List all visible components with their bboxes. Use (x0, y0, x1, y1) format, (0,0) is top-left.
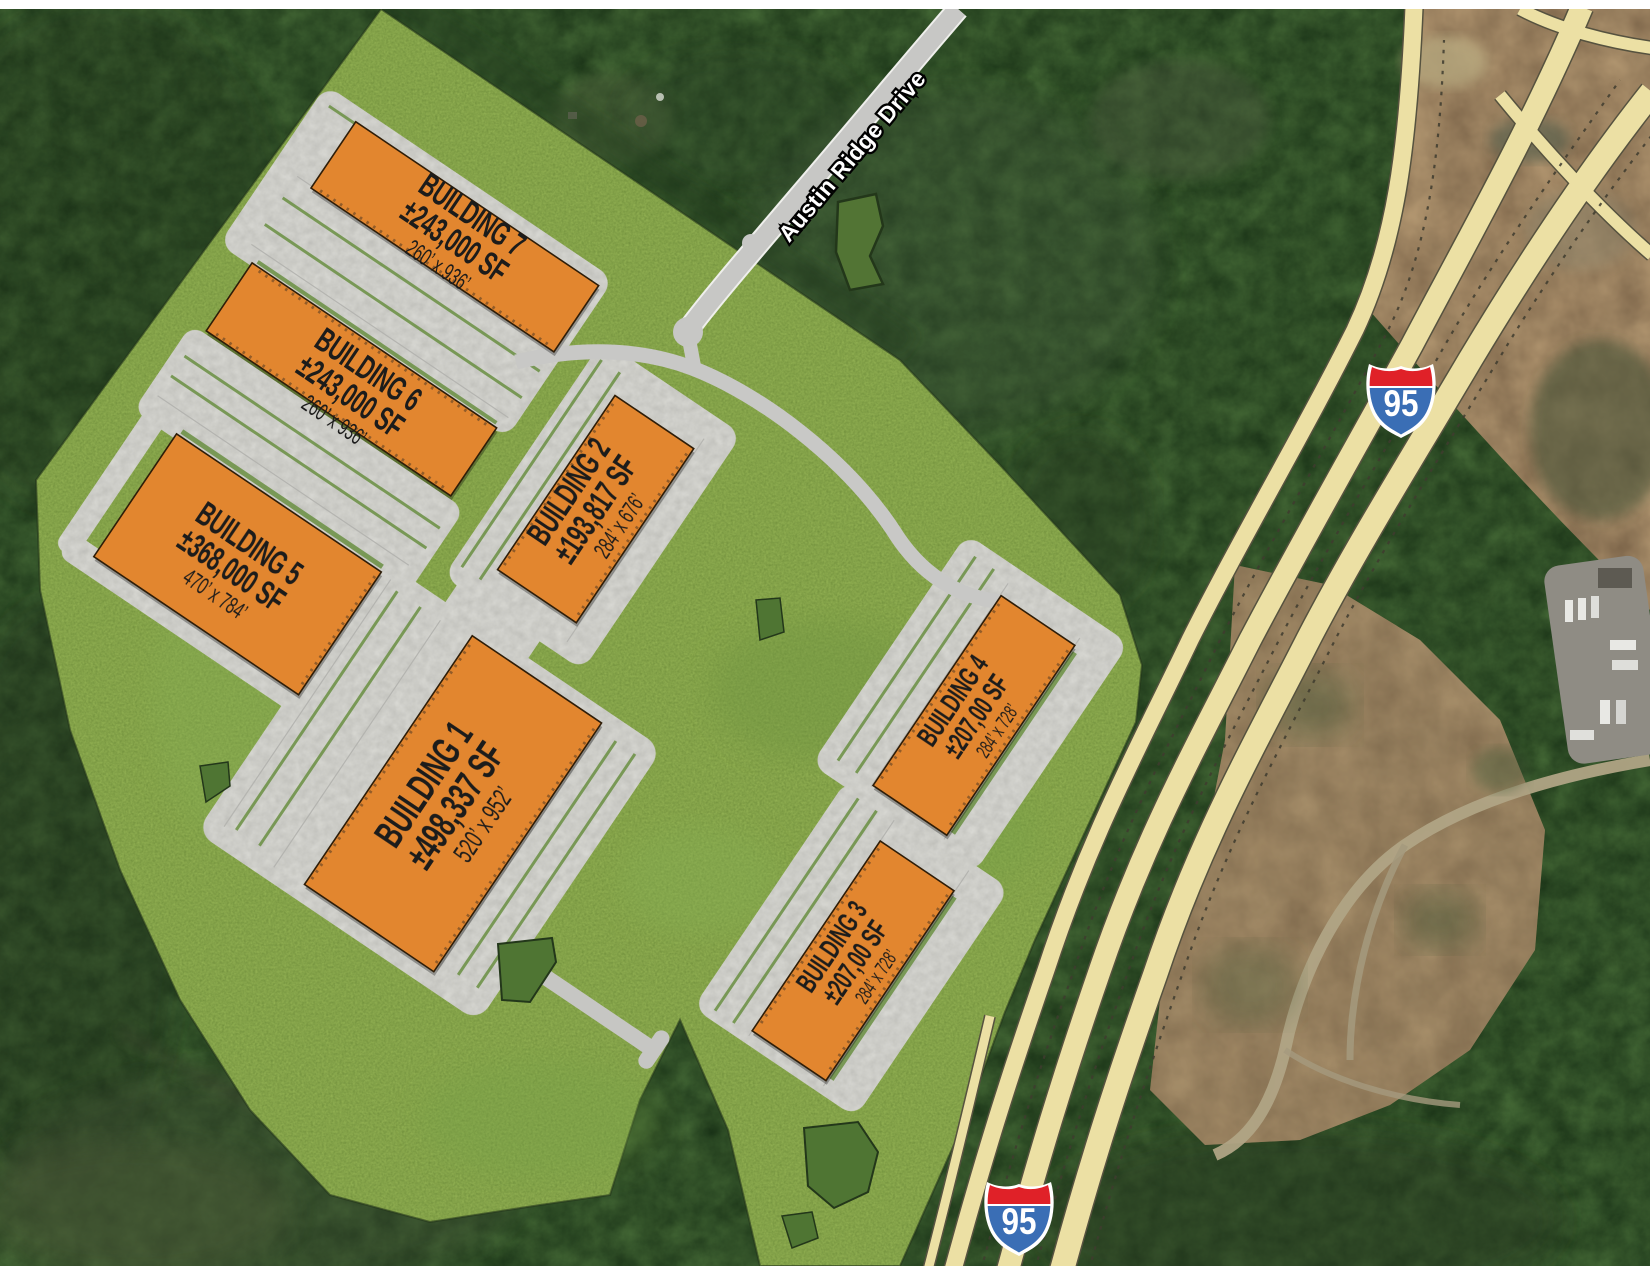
svg-text:95: 95 (1002, 1202, 1037, 1243)
svg-text:95: 95 (1384, 384, 1419, 425)
